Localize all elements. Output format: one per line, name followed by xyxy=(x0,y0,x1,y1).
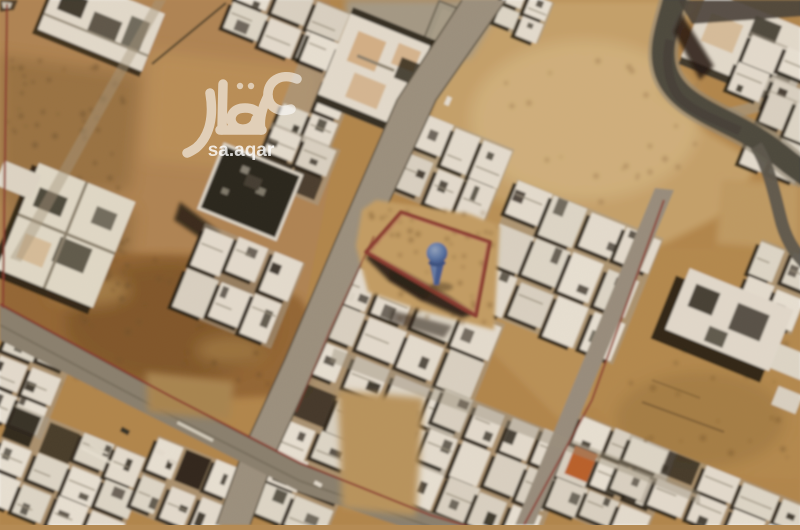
svg-text:sa.aqar: sa.aqar xyxy=(208,140,275,161)
